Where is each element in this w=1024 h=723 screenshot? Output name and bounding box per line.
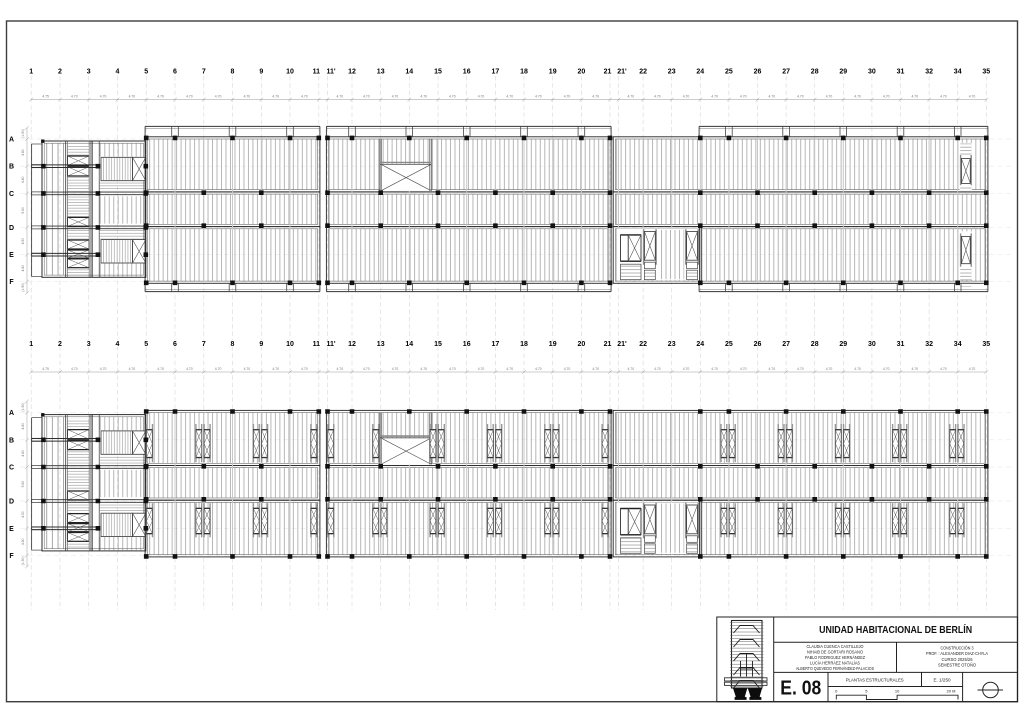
svg-text:4.70: 4.70	[506, 95, 513, 99]
svg-text:3: 3	[87, 341, 91, 348]
svg-text:4.70: 4.70	[740, 367, 747, 371]
svg-text:4.70: 4.70	[506, 367, 513, 371]
svg-text:32: 32	[925, 341, 933, 348]
svg-text:B: B	[9, 164, 14, 171]
svg-text:4.70: 4.70	[420, 367, 427, 371]
svg-text:(1.90): (1.90)	[21, 283, 25, 292]
svg-text:UNIDAD HABITACIONAL DE BERLÍN: UNIDAD HABITACIONAL DE BERLÍN	[819, 623, 972, 636]
svg-text:4.70: 4.70	[215, 367, 222, 371]
svg-text:4.70: 4.70	[654, 95, 661, 99]
svg-text:4.70: 4.70	[363, 367, 370, 371]
svg-text:4.80: 4.80	[21, 265, 25, 272]
svg-text:4.70: 4.70	[564, 367, 571, 371]
svg-text:11: 11	[313, 69, 321, 76]
svg-text:16: 16	[463, 341, 471, 348]
svg-text:30: 30	[868, 69, 876, 76]
svg-text:11': 11'	[326, 341, 335, 348]
svg-text:C: C	[9, 465, 14, 472]
svg-text:PABLO RODRIGUEZ HERNÁNDEZ: PABLO RODRIGUEZ HERNÁNDEZ	[805, 655, 865, 660]
svg-text:14: 14	[405, 341, 413, 348]
svg-text:27: 27	[782, 341, 790, 348]
svg-text:PROF. : ALEXANDER DIAZ-CHYLA: PROF. : ALEXANDER DIAZ-CHYLA	[926, 651, 988, 656]
svg-text:D: D	[9, 499, 14, 506]
svg-text:20: 20	[578, 341, 586, 348]
svg-text:C: C	[9, 191, 14, 198]
svg-text:(1.90): (1.90)	[21, 556, 25, 565]
svg-text:4.70: 4.70	[826, 95, 833, 99]
svg-text:15: 15	[434, 341, 442, 348]
svg-text:A: A	[9, 410, 14, 417]
svg-text:10: 10	[286, 69, 294, 76]
svg-text:18: 18	[520, 341, 528, 348]
svg-text:17: 17	[492, 341, 500, 348]
svg-text:E: E	[9, 252, 14, 259]
svg-text:4.70: 4.70	[449, 95, 456, 99]
svg-text:4.70: 4.70	[797, 367, 804, 371]
svg-text:25: 25	[725, 341, 733, 348]
svg-text:26: 26	[754, 341, 762, 348]
svg-text:4.80: 4.80	[21, 423, 25, 430]
svg-text:10: 10	[286, 341, 294, 348]
svg-text:7: 7	[202, 69, 206, 76]
svg-text:4.70: 4.70	[363, 95, 370, 99]
svg-text:1: 1	[29, 69, 33, 76]
svg-text:4.70: 4.70	[186, 367, 193, 371]
svg-text:28: 28	[811, 341, 819, 348]
svg-text:4.70: 4.70	[535, 367, 542, 371]
svg-text:4.80: 4.80	[21, 149, 25, 156]
svg-text:21: 21	[604, 69, 612, 76]
svg-text:4.70: 4.70	[768, 367, 775, 371]
svg-text:4.70: 4.70	[244, 367, 251, 371]
svg-text:14: 14	[405, 69, 413, 76]
svg-text:24: 24	[696, 341, 704, 348]
svg-text:4.70: 4.70	[911, 95, 918, 99]
svg-text:34: 34	[954, 69, 962, 76]
svg-text:E. 1/250: E. 1/250	[933, 677, 951, 682]
svg-text:4.70: 4.70	[392, 95, 399, 99]
svg-text:35: 35	[982, 341, 990, 348]
svg-text:4.70: 4.70	[683, 367, 690, 371]
svg-text:23: 23	[668, 69, 676, 76]
svg-text:4.70: 4.70	[129, 95, 136, 99]
svg-text:16: 16	[463, 69, 471, 76]
svg-text:35: 35	[982, 69, 990, 76]
svg-text:20: 20	[578, 69, 586, 76]
svg-text:LUCÍA HERRÁEZ NATALÍAS: LUCÍA HERRÁEZ NATALÍAS	[810, 661, 860, 666]
svg-text:12: 12	[348, 69, 356, 76]
svg-text:20 M: 20 M	[947, 688, 956, 693]
svg-text:24: 24	[696, 69, 704, 76]
svg-text:A: A	[9, 137, 14, 144]
svg-text:4.70: 4.70	[301, 95, 308, 99]
svg-text:4.70: 4.70	[592, 95, 599, 99]
svg-text:32: 32	[925, 69, 933, 76]
svg-text:18: 18	[520, 69, 528, 76]
svg-text:4.70: 4.70	[564, 95, 571, 99]
svg-text:4.70: 4.70	[740, 95, 747, 99]
svg-text:13: 13	[377, 69, 385, 76]
svg-text:8: 8	[231, 69, 235, 76]
svg-text:4.70: 4.70	[186, 95, 193, 99]
svg-text:4.70: 4.70	[711, 95, 718, 99]
svg-text:4.80: 4.80	[21, 450, 25, 457]
svg-text:4.70: 4.70	[797, 95, 804, 99]
svg-text:(1.90): (1.90)	[21, 129, 25, 138]
svg-text:22: 22	[639, 69, 647, 76]
svg-text:4: 4	[116, 69, 120, 76]
svg-text:4.70: 4.70	[71, 95, 78, 99]
svg-text:4.80: 4.80	[21, 538, 25, 545]
svg-text:E: E	[9, 526, 14, 533]
svg-text:5: 5	[144, 341, 148, 348]
svg-text:4.70: 4.70	[449, 367, 456, 371]
svg-text:25: 25	[725, 69, 733, 76]
svg-text:11: 11	[313, 341, 321, 348]
svg-text:B: B	[9, 437, 14, 444]
svg-text:22: 22	[639, 341, 647, 348]
svg-text:1: 1	[29, 341, 33, 348]
svg-text:10: 10	[895, 688, 900, 693]
svg-text:4.70: 4.70	[883, 367, 890, 371]
svg-text:21': 21'	[617, 341, 627, 348]
svg-text:4.75: 4.75	[42, 95, 49, 99]
svg-text:5.60: 5.60	[21, 207, 25, 214]
svg-text:29: 29	[839, 69, 847, 76]
svg-text:4.70: 4.70	[272, 367, 279, 371]
svg-text:5.60: 5.60	[21, 481, 25, 488]
svg-text:4.70: 4.70	[627, 95, 634, 99]
svg-text:4.70: 4.70	[768, 95, 775, 99]
svg-text:19: 19	[549, 69, 557, 76]
svg-text:15: 15	[434, 69, 442, 76]
svg-text:4.70: 4.70	[969, 95, 976, 99]
svg-text:12: 12	[348, 341, 356, 348]
svg-text:4.70: 4.70	[157, 95, 164, 99]
svg-text:4.70: 4.70	[392, 367, 399, 371]
svg-text:PLANTAS ESTRUCTURALES: PLANTAS ESTRUCTURALES	[846, 677, 904, 682]
svg-text:4.70: 4.70	[854, 367, 861, 371]
svg-text:4.70: 4.70	[100, 367, 107, 371]
svg-text:2: 2	[58, 69, 62, 76]
svg-text:30: 30	[868, 341, 876, 348]
svg-text:SEMESTRE OTOÑO: SEMESTRE OTOÑO	[938, 663, 977, 668]
svg-text:4.70: 4.70	[157, 367, 164, 371]
svg-text:2: 2	[58, 341, 62, 348]
svg-text:4.70: 4.70	[301, 367, 308, 371]
svg-text:3: 3	[87, 69, 91, 76]
svg-text:4.70: 4.70	[478, 95, 485, 99]
svg-text:4.70: 4.70	[854, 95, 861, 99]
svg-text:6: 6	[173, 341, 177, 348]
svg-text:CONSTRUCCIÓN 3: CONSTRUCCIÓN 3	[941, 645, 975, 650]
svg-text:4.70: 4.70	[940, 367, 947, 371]
svg-text:D: D	[9, 225, 14, 232]
svg-text:4.70: 4.70	[535, 95, 542, 99]
svg-text:CLAUDIA CUENCA CASTILLEJO: CLAUDIA CUENCA CASTILLEJO	[807, 644, 865, 649]
svg-text:11': 11'	[326, 69, 335, 76]
svg-text:4.70: 4.70	[244, 95, 251, 99]
svg-text:4.70: 4.70	[129, 367, 136, 371]
svg-text:34: 34	[954, 341, 962, 348]
svg-text:9: 9	[259, 69, 263, 76]
svg-text:4.70: 4.70	[969, 367, 976, 371]
svg-text:CURSO 2025/26: CURSO 2025/26	[942, 657, 974, 662]
svg-text:4.70: 4.70	[336, 367, 343, 371]
svg-text:4.50: 4.50	[21, 511, 25, 518]
svg-text:19: 19	[549, 341, 557, 348]
svg-text:(1.90): (1.90)	[21, 403, 25, 412]
svg-text:ALBERTO QUEVEDO FERNÁNDEZ-PALA: ALBERTO QUEVEDO FERNÁNDEZ-PALACIOS	[796, 666, 874, 671]
svg-text:21: 21	[604, 341, 612, 348]
svg-text:4.70: 4.70	[883, 95, 890, 99]
svg-text:4.70: 4.70	[478, 367, 485, 371]
svg-text:4.70: 4.70	[940, 95, 947, 99]
svg-text:26: 26	[754, 69, 762, 76]
svg-text:31: 31	[897, 341, 905, 348]
svg-text:9: 9	[259, 341, 263, 348]
svg-text:E. 08: E. 08	[780, 676, 821, 699]
svg-text:4.70: 4.70	[683, 95, 690, 99]
svg-text:13: 13	[377, 341, 385, 348]
svg-text:4.70: 4.70	[100, 95, 107, 99]
svg-text:31: 31	[897, 69, 905, 76]
svg-text:7: 7	[202, 341, 206, 348]
svg-text:21': 21'	[617, 69, 627, 76]
svg-text:4.70: 4.70	[420, 95, 427, 99]
svg-text:28: 28	[811, 69, 819, 76]
svg-text:5: 5	[144, 69, 148, 76]
svg-text:23: 23	[668, 341, 676, 348]
svg-text:NIHAIB DE GORTARI ROSANO: NIHAIB DE GORTARI ROSANO	[807, 649, 864, 654]
svg-text:4.70: 4.70	[911, 367, 918, 371]
svg-text:4.70: 4.70	[826, 367, 833, 371]
svg-text:4.70: 4.70	[336, 95, 343, 99]
svg-text:8: 8	[231, 341, 235, 348]
svg-text:4.50: 4.50	[21, 238, 25, 245]
svg-text:F: F	[9, 553, 14, 560]
svg-text:4.75: 4.75	[42, 367, 49, 371]
svg-text:17: 17	[492, 69, 500, 76]
svg-text:4.70: 4.70	[627, 367, 634, 371]
svg-text:4.80: 4.80	[21, 176, 25, 183]
svg-text:27: 27	[782, 69, 790, 76]
svg-text:29: 29	[839, 341, 847, 348]
svg-text:4.70: 4.70	[215, 95, 222, 99]
svg-text:6: 6	[173, 69, 177, 76]
svg-text:4.70: 4.70	[592, 367, 599, 371]
svg-text:4: 4	[116, 341, 120, 348]
svg-text:4.70: 4.70	[272, 95, 279, 99]
svg-text:4.70: 4.70	[654, 367, 661, 371]
svg-text:F: F	[9, 279, 14, 286]
svg-text:4.70: 4.70	[711, 367, 718, 371]
svg-text:4.70: 4.70	[71, 367, 78, 371]
